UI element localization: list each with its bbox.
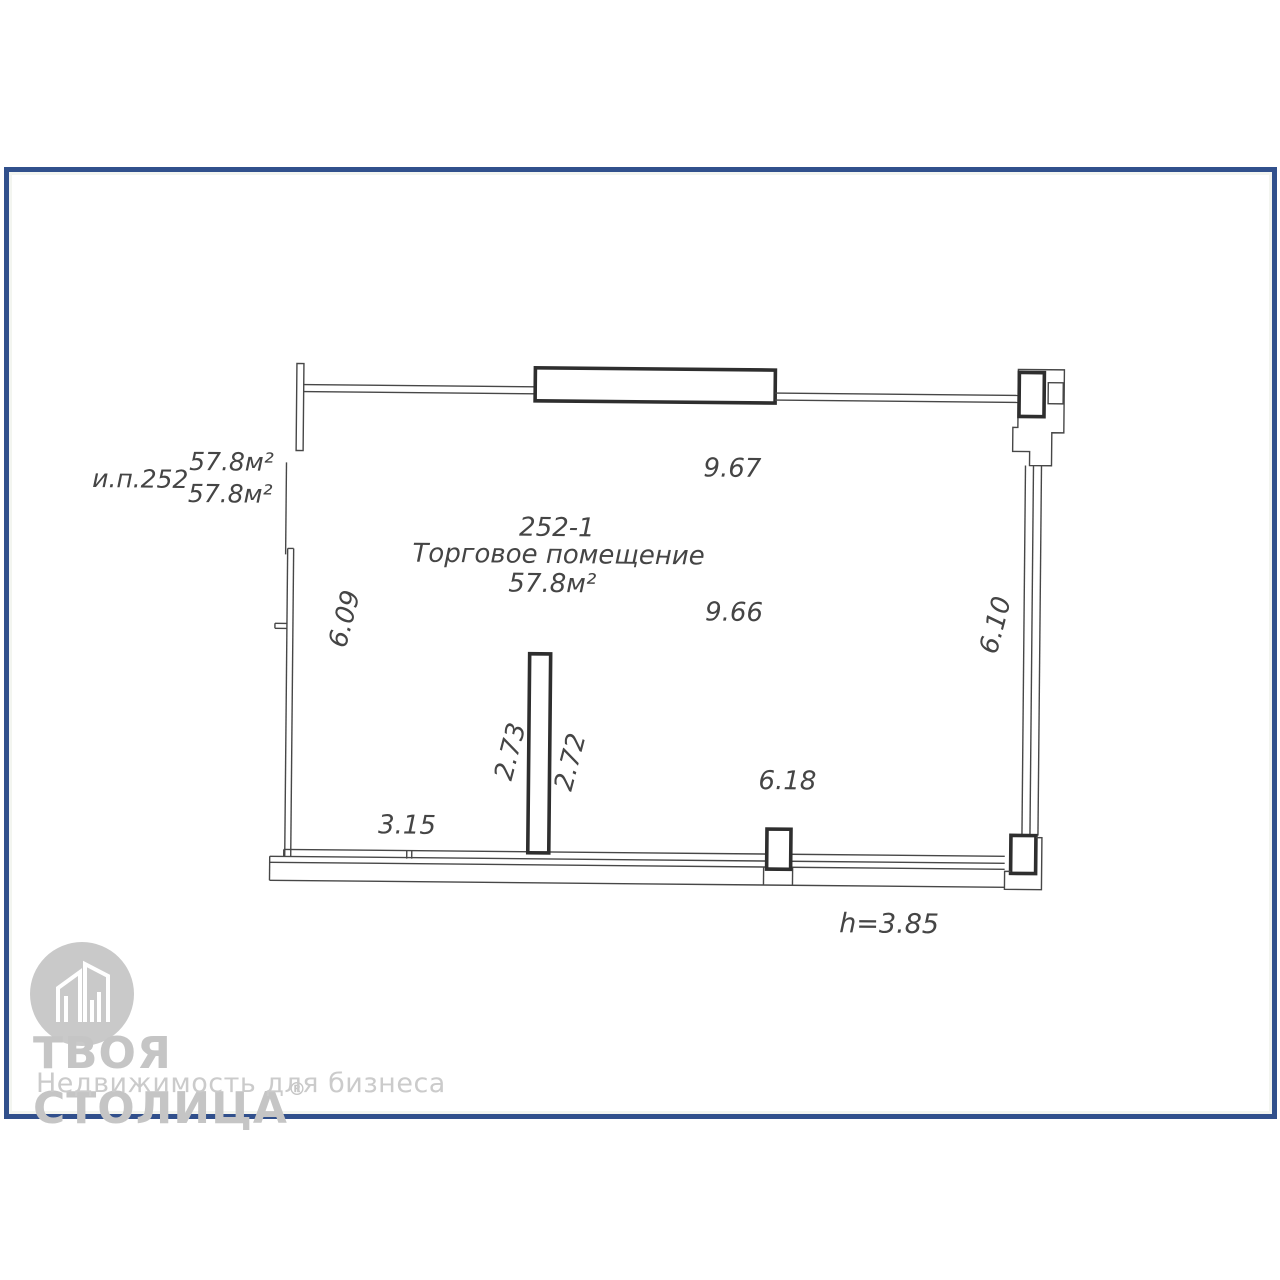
- ceiling-height-label: h=3.85: [839, 910, 939, 938]
- logo-subtitle: Недвижимость для бизнеса: [36, 1068, 446, 1099]
- room-area-label: 57.8м²: [508, 571, 596, 598]
- interior-partition-wall: [528, 654, 551, 853]
- top-wall: [296, 364, 1018, 458]
- dim-bottom-left-label: 3.15: [378, 812, 436, 839]
- dim-bottom-right-label: 6.18: [758, 768, 816, 795]
- bottom-wall-column: [767, 829, 791, 869]
- top-wall-beam: [535, 368, 775, 403]
- bottom-right-column: [1004, 835, 1042, 889]
- dim-top-label: 9.67: [703, 455, 761, 482]
- area-label-lower: 57.8м²: [188, 481, 273, 507]
- top-right-column: [1013, 369, 1065, 465]
- left-wall: [273, 462, 295, 856]
- room-number-label: 252-1: [519, 515, 595, 542]
- dim-mid-label: 9.66: [705, 599, 763, 626]
- boundary-line: [286, 462, 287, 554]
- unit-number-label: и.п.252: [92, 466, 188, 492]
- right-wall: [1022, 466, 1042, 836]
- top-left-pier: [296, 364, 304, 451]
- room-name-label: Торговое помещение: [412, 541, 704, 570]
- area-label-upper: 57.8м²: [189, 449, 274, 475]
